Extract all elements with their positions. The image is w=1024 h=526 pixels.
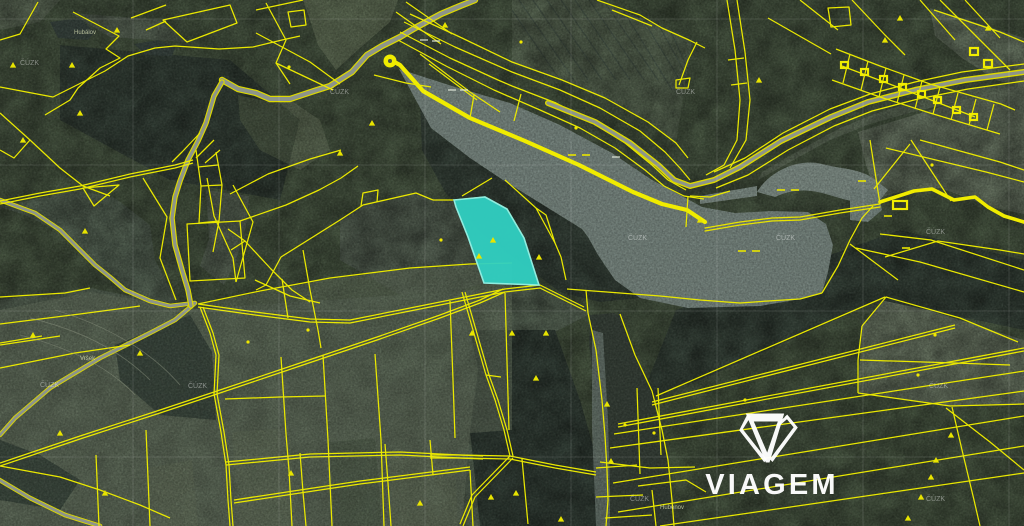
svg-text:ČÚZK: ČÚZK [330,87,349,96]
svg-text:ČÚZK: ČÚZK [630,494,649,503]
svg-text:ČÚZK: ČÚZK [926,494,945,503]
svg-text:ČÚZK: ČÚZK [929,381,948,390]
svg-text:Hubálov: Hubálov [74,30,96,36]
svg-text:ČÚZK: ČÚZK [676,87,695,96]
svg-text:ČÚZK: ČÚZK [20,58,39,67]
svg-text:ČÚZK: ČÚZK [40,380,59,389]
svg-text:ČÚZK: ČÚZK [776,233,795,242]
svg-text:ČÚZK: ČÚZK [926,227,945,236]
svg-text:Hubenov: Hubenov [660,505,684,511]
svg-text:ČÚZK: ČÚZK [628,233,647,242]
svg-text:ČÚZK: ČÚZK [188,381,207,390]
svg-text:Vršek: Vršek [80,356,96,362]
svg-text:VIAGEM: VIAGEM [705,469,839,501]
